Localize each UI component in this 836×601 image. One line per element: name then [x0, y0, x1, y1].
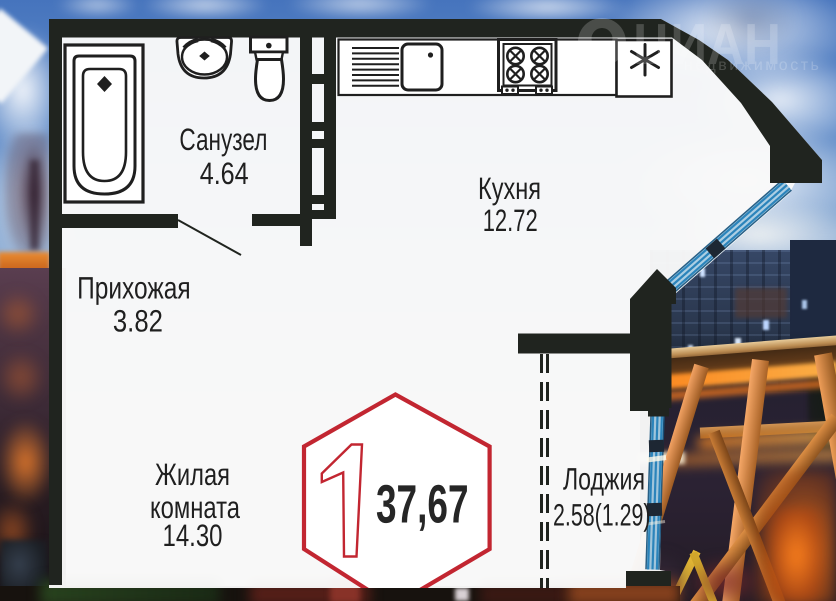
svg-text:12.72: 12.72: [483, 203, 538, 238]
svg-text:Прихожая: Прихожая: [77, 271, 191, 306]
svg-text:2.58(1.29): 2.58(1.29): [553, 498, 651, 533]
svg-text:3.82: 3.82: [113, 304, 163, 339]
svg-text:Кухня: Кухня: [478, 171, 541, 206]
svg-text:4.64: 4.64: [200, 156, 249, 191]
svg-text:14.30: 14.30: [163, 518, 223, 553]
svg-text:Санузел: Санузел: [179, 122, 267, 157]
svg-text:Жилая: Жилая: [155, 457, 230, 492]
svg-text:недвижимость: недвижимость: [684, 57, 821, 74]
svg-text:37,67: 37,67: [376, 475, 469, 535]
svg-text:Лоджия: Лоджия: [563, 462, 645, 497]
